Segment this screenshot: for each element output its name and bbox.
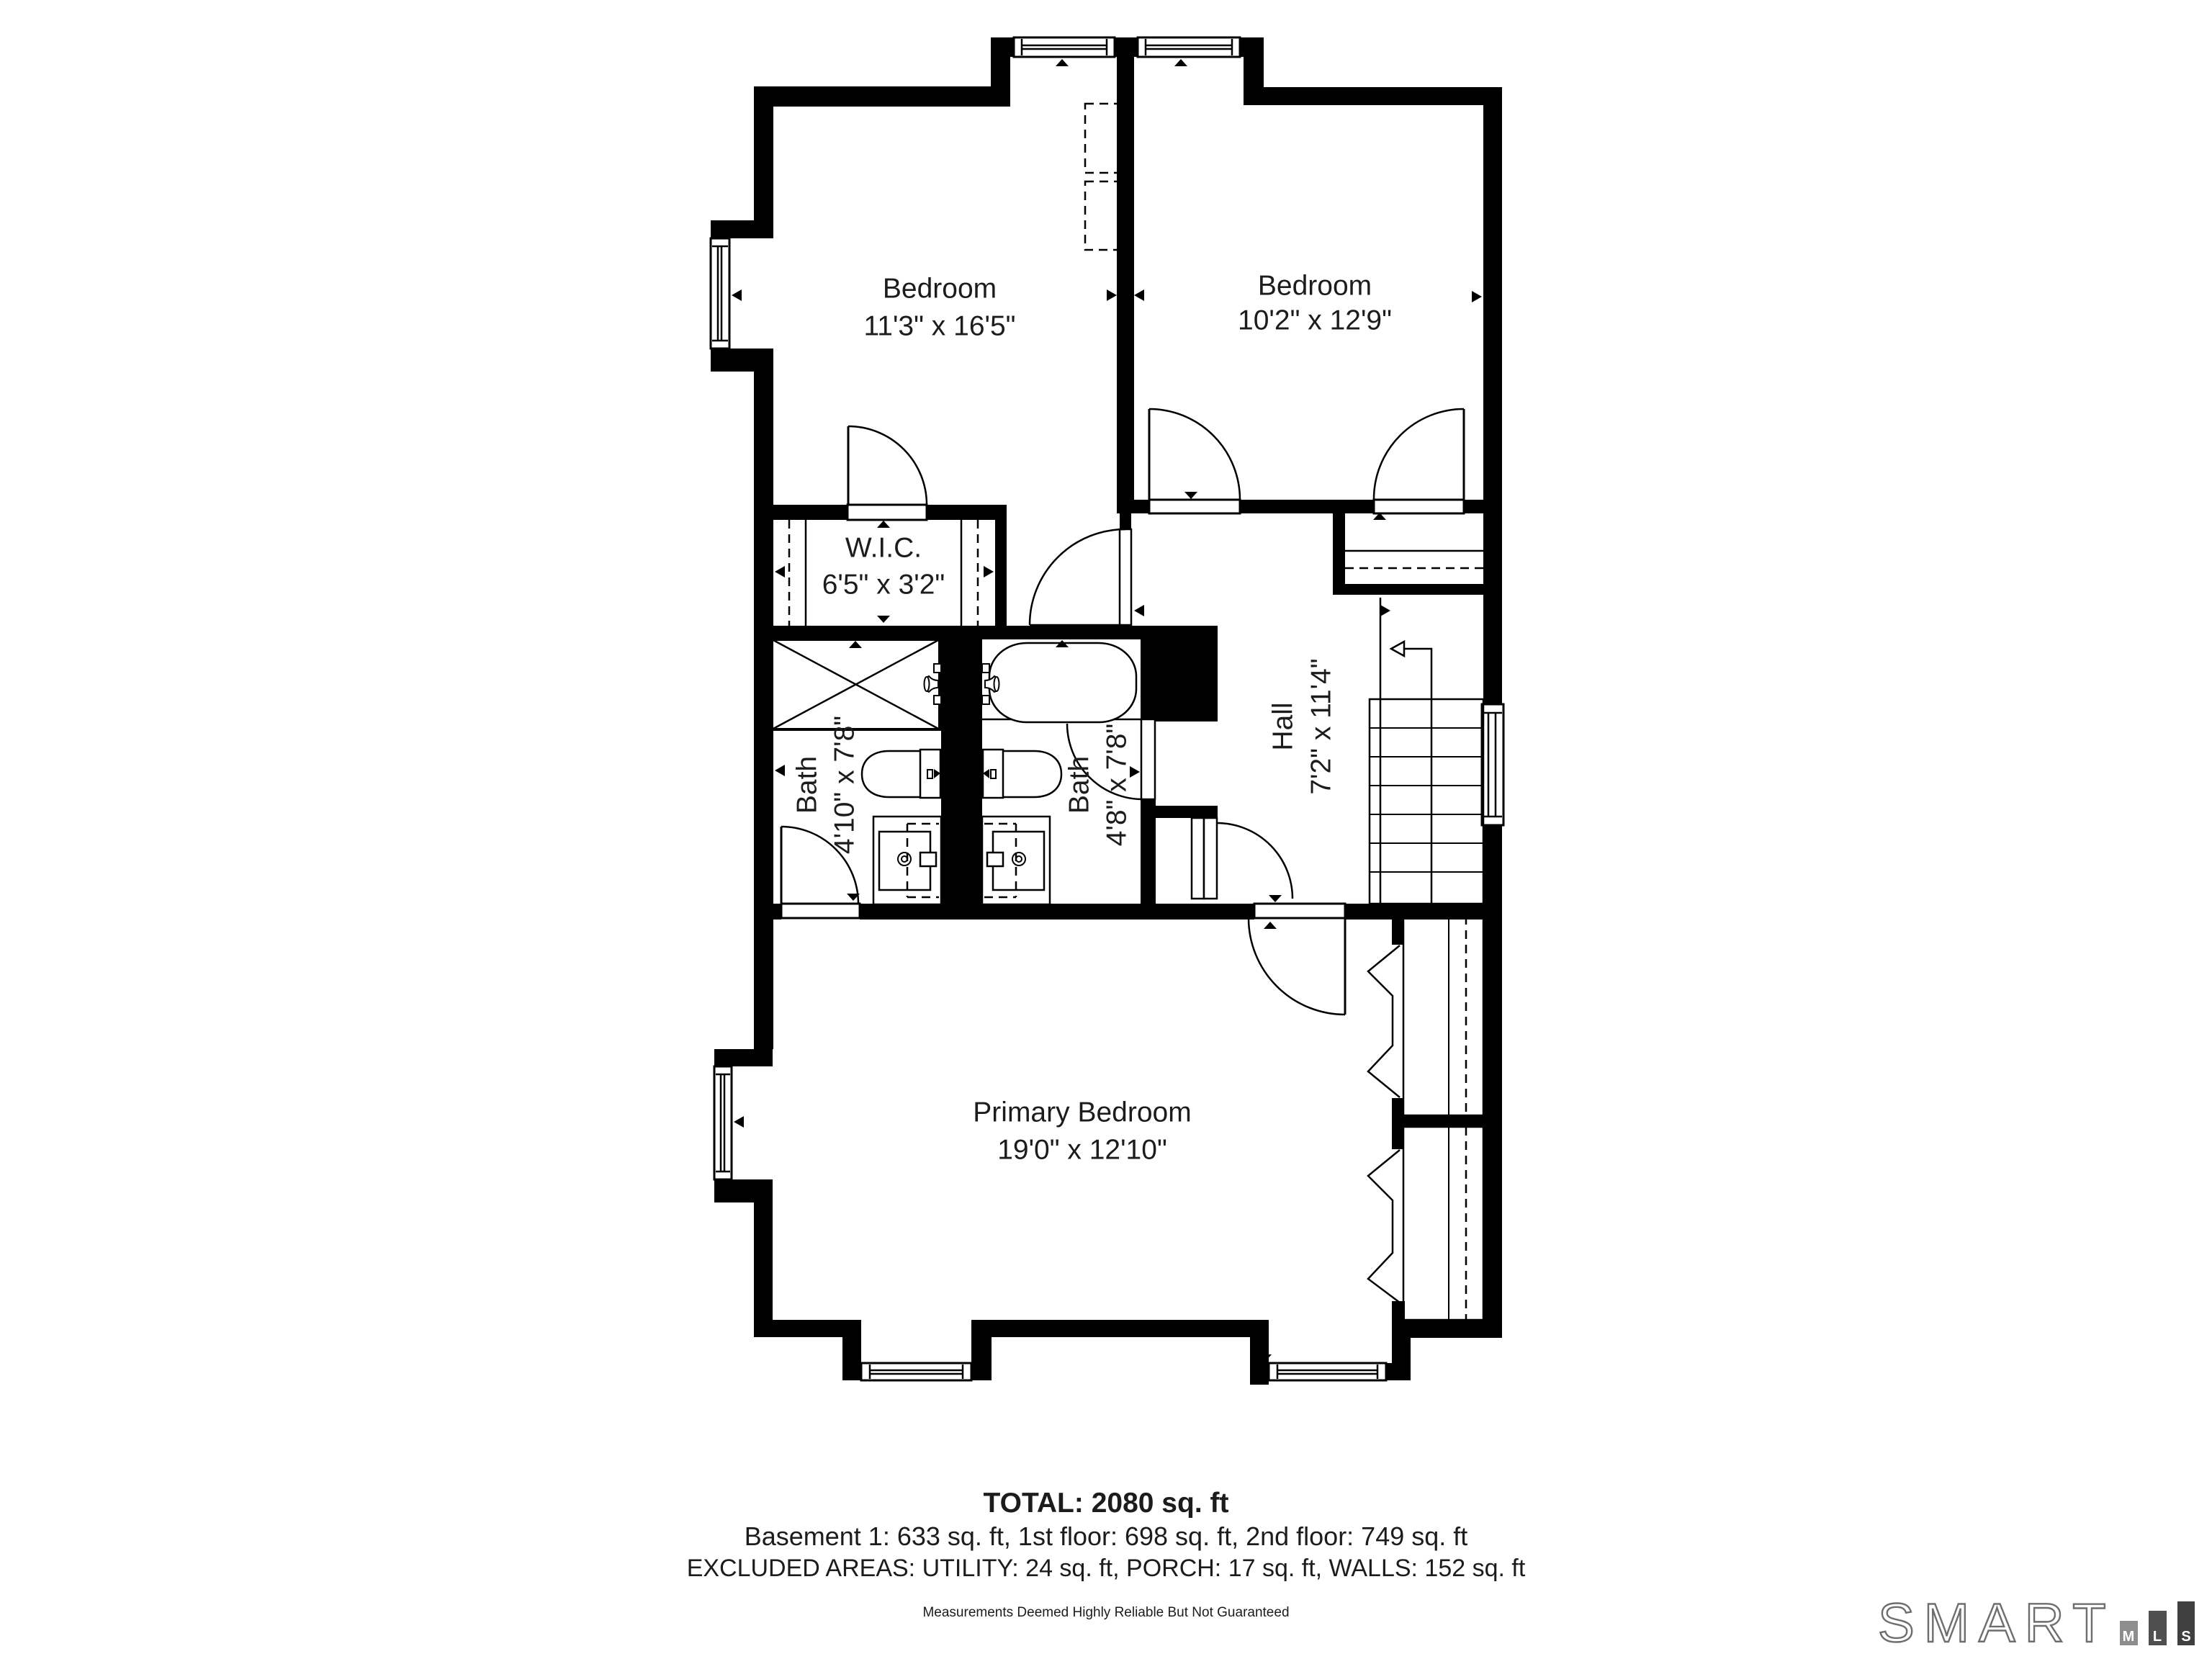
svg-text:TOTAL: 2080 sq. ft: TOTAL: 2080 sq. ft	[984, 1488, 1229, 1519]
svg-text:Bath: Bath	[792, 756, 823, 814]
svg-text:EXCLUDED AREAS: UTILITY: 24 sq: EXCLUDED AREAS: UTILITY: 24 sq. ft, PORC…	[687, 1555, 1526, 1582]
svg-text:4'10" x 7'8": 4'10" x 7'8"	[829, 716, 860, 854]
svg-text:Primary Bedroom: Primary Bedroom	[973, 1097, 1191, 1128]
svg-text:Measurements Deemed Highly Rel: Measurements Deemed Highly Reliable But …	[922, 1605, 1289, 1620]
svg-text:M: M	[2123, 1629, 2135, 1645]
svg-text:Bedroom: Bedroom	[883, 274, 997, 305]
svg-text:Basement 1: 633 sq. ft, 1st fl: Basement 1: 633 sq. ft, 1st floor: 698 s…	[745, 1521, 1468, 1551]
svg-text:6'5" x 3'2": 6'5" x 3'2"	[822, 570, 945, 601]
svg-text:SMART: SMART	[1878, 1593, 2116, 1654]
svg-text:4'8" x 7'8": 4'8" x 7'8"	[1102, 724, 1133, 847]
svg-text:11'3" x 16'5": 11'3" x 16'5"	[864, 311, 1016, 342]
svg-text:Bedroom: Bedroom	[1258, 271, 1372, 302]
svg-text:7'2" x 11'4": 7'2" x 11'4"	[1306, 658, 1337, 794]
svg-text:Hall: Hall	[1268, 702, 1299, 750]
svg-text:L: L	[2153, 1629, 2162, 1645]
svg-text:10'2" x 12'9": 10'2" x 12'9"	[1238, 305, 1392, 336]
svg-text:19'0" x 12'10": 19'0" x 12'10"	[997, 1135, 1167, 1166]
svg-text:S: S	[2181, 1629, 2190, 1645]
svg-text:W.I.C.: W.I.C.	[845, 533, 922, 564]
svg-text:Bath: Bath	[1064, 756, 1095, 814]
